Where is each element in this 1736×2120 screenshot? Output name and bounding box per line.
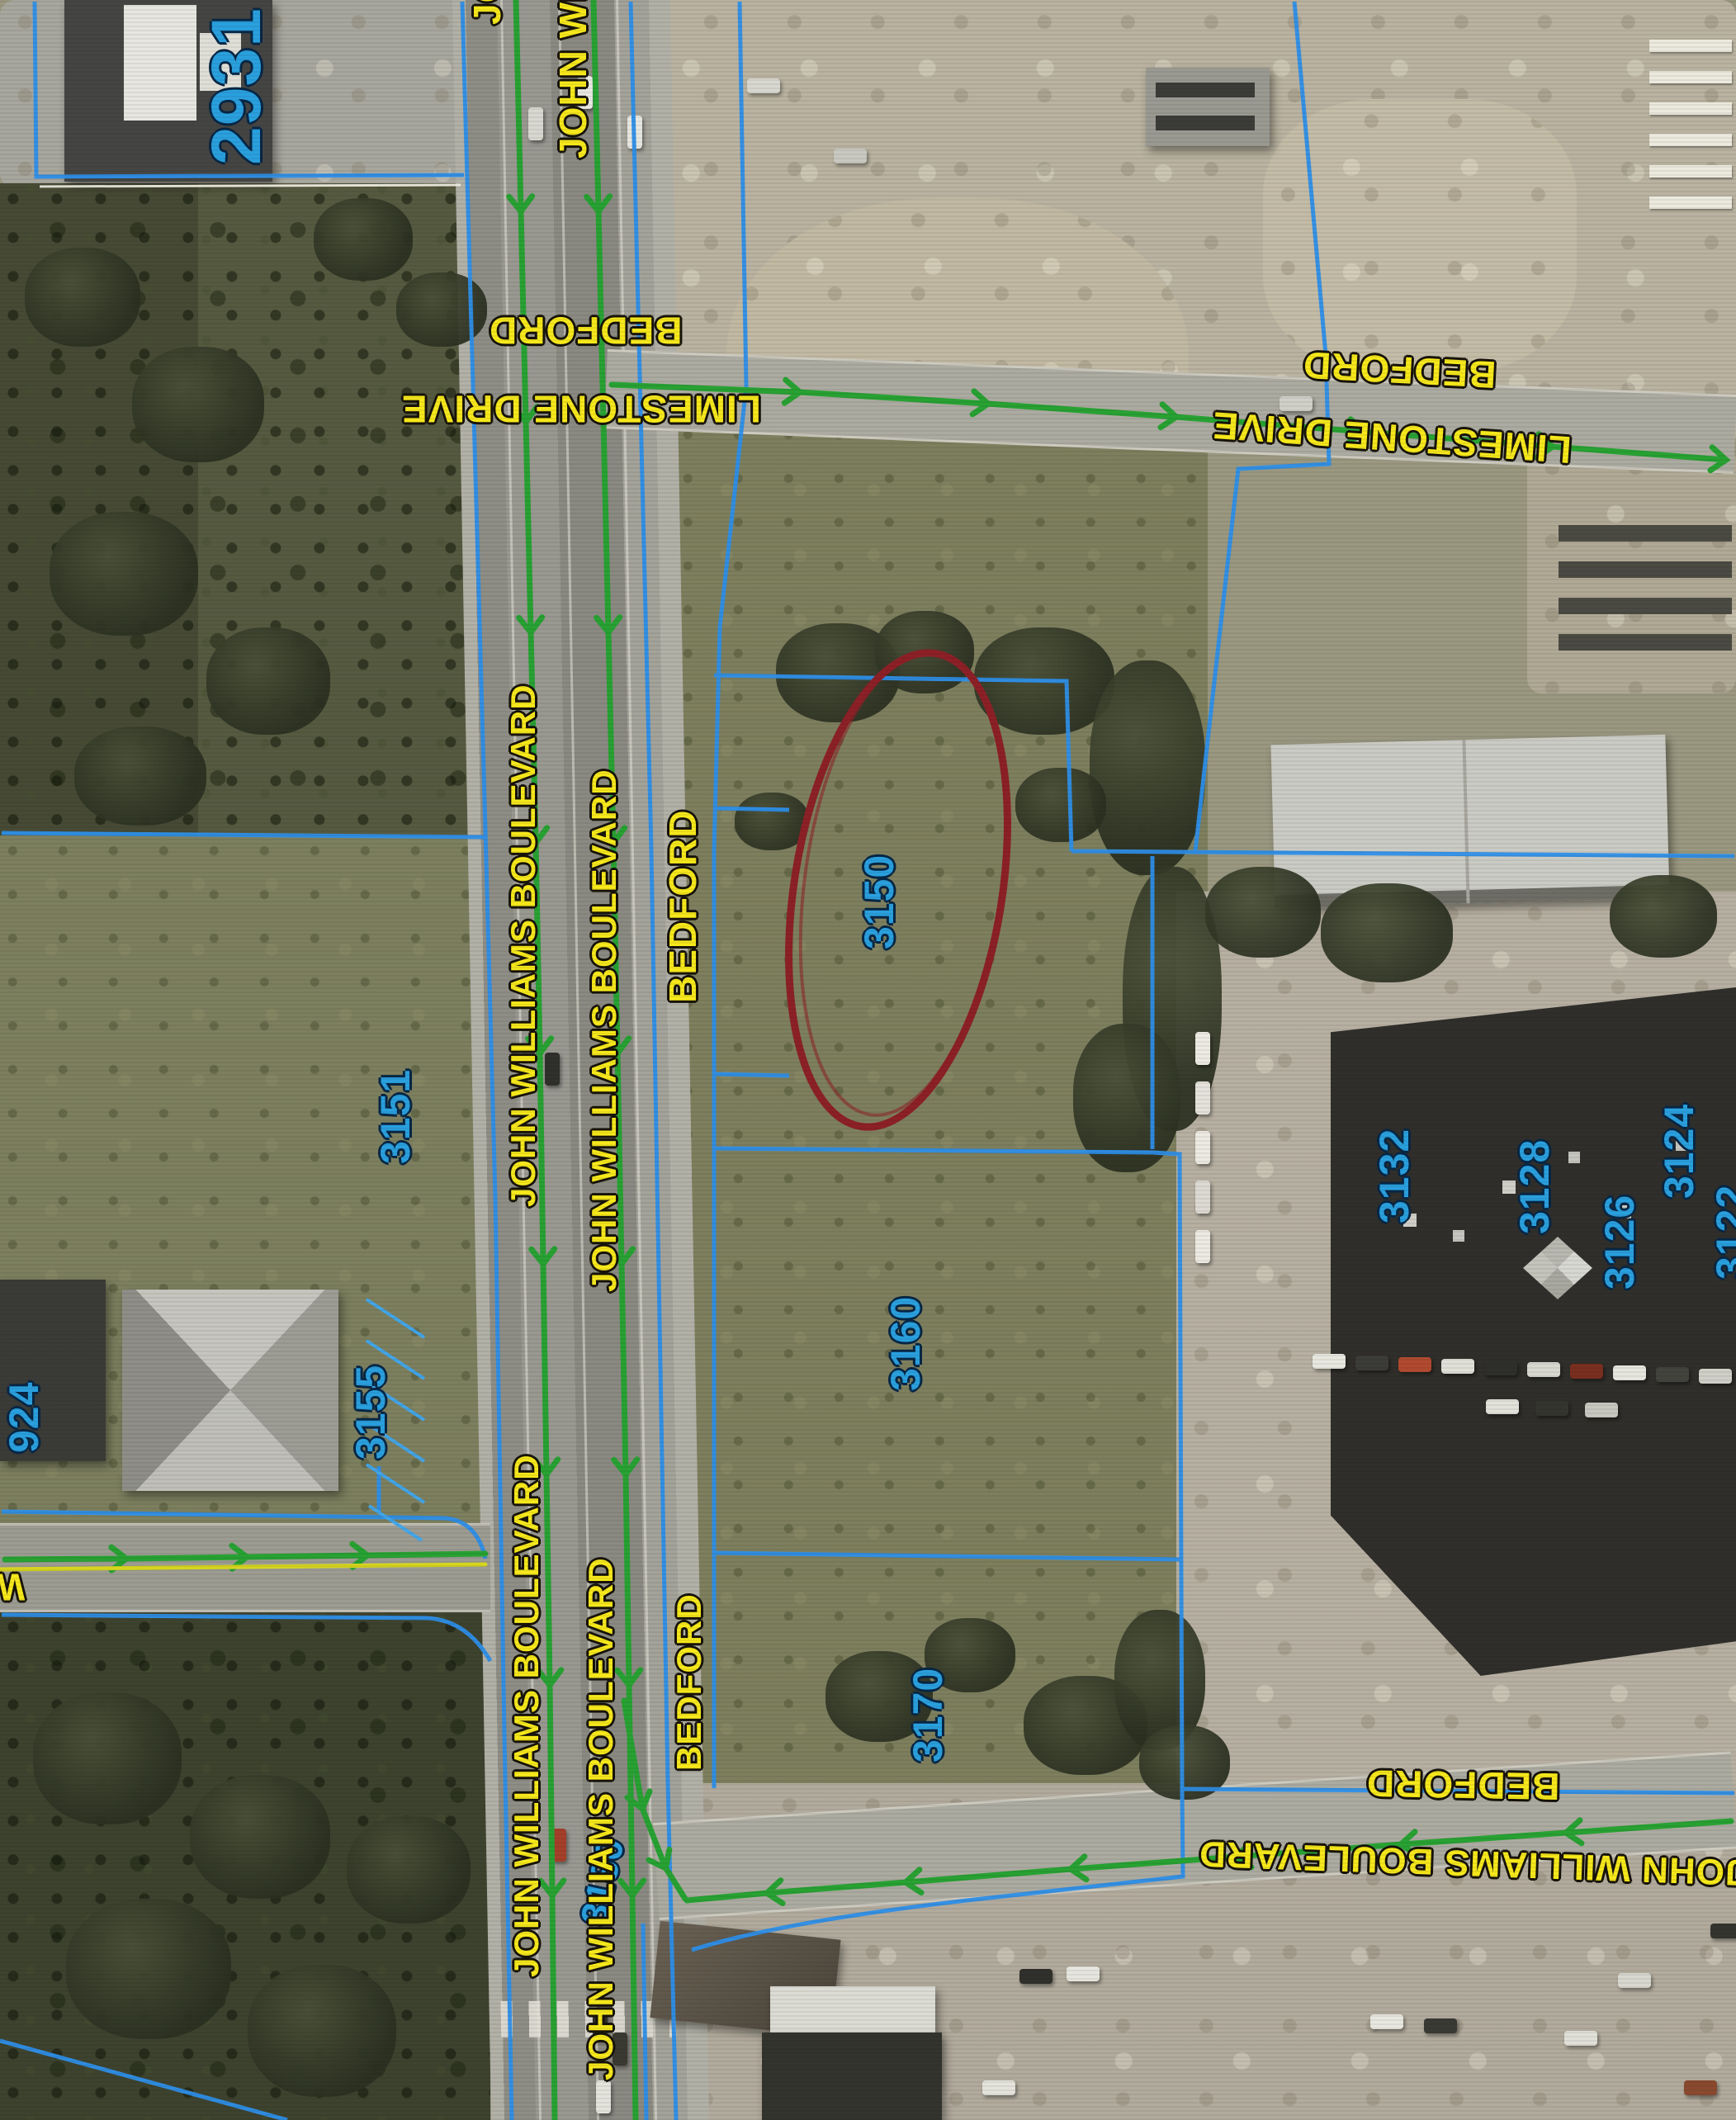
highlight-ellipse-overlay <box>0 0 1736 2120</box>
aerial-parcel-map: JOHN WILLIAMS BOULEVARD JOHN WILLIAMS BO… <box>0 0 1736 2120</box>
highlight-ellipse-parcel-3150 <box>758 637 1038 1143</box>
